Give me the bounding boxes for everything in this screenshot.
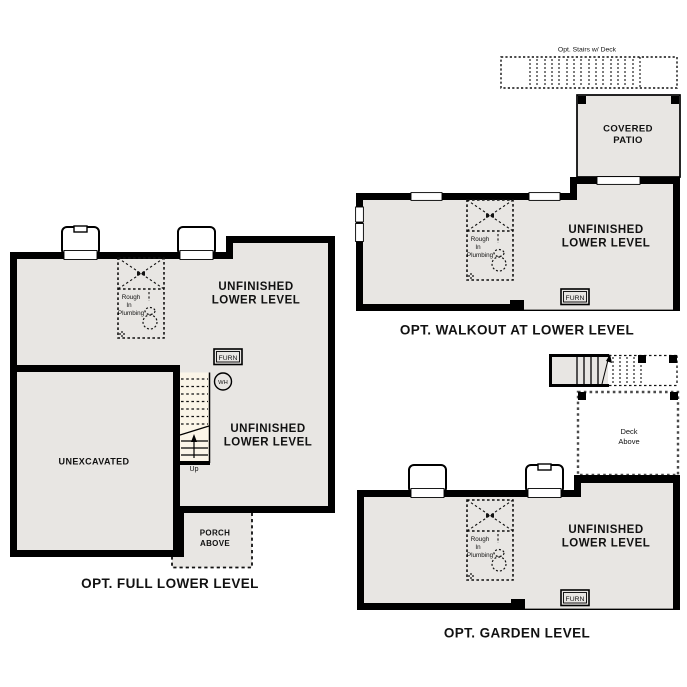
garden-window-well-left [409,465,446,498]
full-plan-title: OPT. FULL LOWER LEVEL [81,576,259,591]
deck-post-mid [638,355,646,363]
walkout-plan-title: OPT. WALKOUT AT LOWER LEVEL [400,323,634,338]
full-upper-room-label-line2: LOWER LEVEL [212,295,301,307]
garden-plan-title: OPT. GARDEN LEVEL [444,626,590,641]
deck-above-label-line1: Deck [620,427,637,436]
garden-room-label-line1: UNFINISHED [568,524,643,536]
deck-above-post-right [670,392,678,400]
window-well-left [62,226,99,260]
porch-label-line2: ABOVE [200,539,230,548]
furnace-full [214,349,242,365]
patio-post-right [671,96,679,104]
patio-post-left [578,96,586,104]
water-heater-label: WH [218,380,228,386]
walkout-room-label-line1: UNFINISHED [568,224,643,236]
stairs-up-label: Up [190,466,199,473]
furnace-garden [561,590,589,606]
water-heater: WH [215,373,232,390]
garden-window-well-right [526,464,563,498]
stairs: Up [178,373,210,474]
covered-patio: COVERED PATIO [577,95,680,177]
plan-garden: Deck Above UNFINISHED LOWER LEVEL OPT. G… [357,354,680,641]
opt-stairs-label: Opt. Stairs w/ Deck [558,47,617,54]
deck-stairs [549,354,677,387]
deck-above-post-left [578,392,586,400]
deck-post-corner [669,355,677,363]
garden-room-label-line2: LOWER LEVEL [562,538,651,550]
deck-above: Deck Above [578,392,678,475]
floorplan-svg: Rough In Plumbing FURN [0,0,687,687]
window-well-right [178,227,215,260]
full-lower-room-label-line2: LOWER LEVEL [224,437,313,449]
opt-stairs-deck: Opt. Stairs w/ Deck [501,47,677,89]
patio-label-line1: COVERED [603,124,653,135]
full-upper-room-label-line1: UNFINISHED [218,281,293,293]
opt-stairs-treads [530,57,640,88]
furnace-walkout [561,289,589,305]
full-lower-room-label-line1: UNFINISHED [230,423,305,435]
plan-full-lower-level: Up WH UNFINISHED LOWER LEVEL UNFINISHED … [14,226,332,591]
deck-above-label-line2: Above [618,437,639,446]
plan-walkout: Opt. Stairs w/ Deck COVERED PATIO [356,47,680,338]
walkout-room-label-line2: LOWER LEVEL [562,238,651,250]
floorplan-sheet: Rough In Plumbing FURN [0,0,687,687]
patio-label-line2: PATIO [613,135,643,146]
unexcavated-label: UNEXCAVATED [59,457,130,467]
porch-label-line1: PORCH [200,529,230,538]
